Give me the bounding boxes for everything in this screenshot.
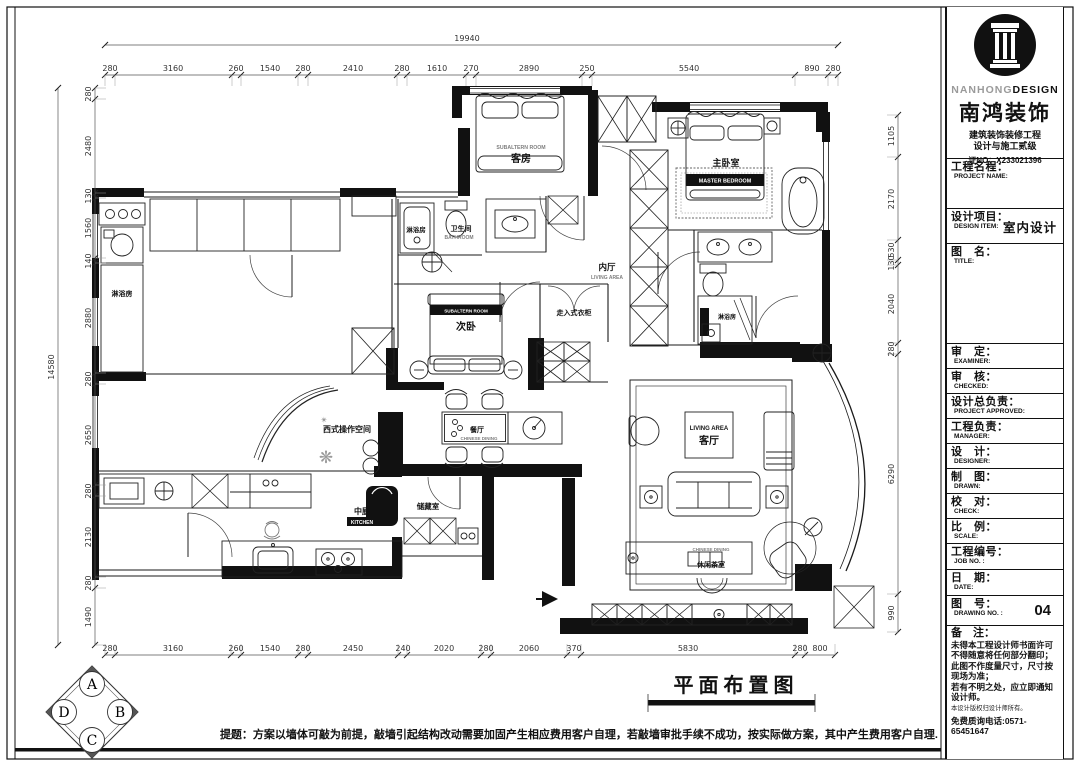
brand-cn: 南鸿装饰 [951,97,1059,127]
dim-label: 280 [295,64,310,73]
dim-label: 260 [228,64,243,73]
dim-label: 3160 [163,644,183,653]
dim-label: 280 [478,644,493,653]
dim-label: 2130 [84,527,93,547]
dim-label: 270 [463,64,478,73]
dim-label: 280 [295,644,310,653]
floorplan-canvas: SUBALTERN ROOM 客房 主卧室 MASTER BEDROOM 淋浴房… [0,0,1080,766]
dim-label: 530 [887,242,896,257]
master-room-label: 主卧室 [712,157,739,168]
field-remarks: 备 注： 未得本工程设计师书面许可不得随意将任何部分翻印； 此图不作度量尺寸，尺… [947,626,1063,757]
cert-lines: 建筑装饰装修工程 设计与施工贰级 [951,130,1059,152]
kitchen-label: 中厨 [354,506,370,516]
dim-label: 2480 [84,136,93,156]
field-designer: 设 计：DESIGNER: [947,444,1063,469]
partitions [99,192,865,576]
walkin-closet-label: 走入式衣柜 [557,308,592,317]
guest-room-label: 客房 [510,152,531,165]
side-table [640,486,662,508]
dim-label: 240 [395,644,410,653]
bathroom-label: 卫生间 [451,224,472,233]
compass-a: A [86,677,98,693]
dim-label: 2450 [343,644,363,653]
bathtub [782,168,824,234]
dim-label: 2060 [519,644,539,653]
dim-label: 280 [102,644,117,653]
company-logo-icon [973,13,1037,77]
dim-label: 2020 [434,644,454,653]
drawing-title-group: 平面布置图 [648,673,815,712]
dim-label: 130 [887,255,896,270]
hotline: 免费质询电话:0571-65451647 [951,716,1059,736]
master-shower-label: 淋浴房 [718,313,736,321]
master-room-label-en: MASTER BEDROOM [699,179,752,185]
bath-shower-label: 淋浴房 [406,225,426,234]
field-drawing-no: 图 号：DRAWING NO. : 04 [947,596,1063,626]
guest-room-label-en: SUBALTERN ROOM [496,145,545,151]
note-divider-bar [15,748,941,752]
dining-label: 餐厅 [469,425,484,434]
brand-en: NANHONGDESIGN [951,84,1059,96]
compass-c: C [87,733,98,749]
swivel-chair [764,522,816,574]
inner-hall-label: 内厅 [598,262,616,272]
dim-label: 2040 [887,294,896,314]
vanity [486,199,546,252]
living-label: 客厅 [698,434,719,447]
flower-deco-icon: ❋ [319,448,333,467]
dim-label: 1560 [84,218,93,238]
dim-label: 280 [887,341,896,356]
dim-label: 990 [887,605,896,620]
second-bedroom-label: 次卧 [456,320,476,333]
field-project-approved: 设计总负责：PROJECT APPROVED: [947,394,1063,419]
drawing-title: 平面布置图 [674,673,799,697]
dim-label: 1540 [260,644,280,653]
dim-label: 280 [84,86,93,101]
dim-label: 2410 [343,64,363,73]
room-labels: SUBALTERN ROOM 客房 主卧室 MASTER BEDROOM 淋浴房… [112,145,752,569]
field-title: 图 名：TITLE: [947,244,1063,344]
bottom-note: 提题：方案以墙体可敲为前提，敲墙引起结构改动需要加固产生相应费用客户自理，若敲墙… [180,726,938,744]
sideboard [508,412,562,444]
dining-label-en: CHINESE DINING [460,436,498,441]
dim-label: 890 [804,64,819,73]
tea-room-label: 休闲茶室 [696,560,725,569]
dim-label: 1105 [887,126,896,146]
dim-label: 130 [84,188,93,203]
dim-label: 2170 [887,189,896,209]
field-check: 校 对：CHECK: [947,494,1063,519]
drawing-sheet: SUBALTERN ROOM 客房 主卧室 MASTER BEDROOM 淋浴房… [0,0,1080,766]
compass-d: D [58,705,69,721]
field-project-name: 工程名程：PROJECT NAME: [947,159,1063,209]
storage-room [458,528,478,544]
sun-deco-icon: ✴ [320,415,328,425]
dim-label: 2880 [84,308,93,328]
bathroom-label-en: BATHROOM [444,235,473,241]
tea-room-label-en: CHINESE DINING [692,547,730,552]
field-examiner: 审 定：EXAMINER: [947,344,1063,369]
field-scale: 比 例：SCALE: [947,519,1063,544]
field-job-no: 工程编号：JOB NO. : [947,544,1063,570]
living-label-en: LIVING AREA [690,426,729,432]
dim-label: 3160 [163,64,183,73]
dim-label: 280 [84,483,93,498]
left-shower-strip [99,203,145,372]
side-table [766,486,788,508]
sofa [668,472,760,516]
dim-label: 800 [812,644,827,653]
dim-label: 1610 [427,64,447,73]
dim-label: 6290 [887,464,896,484]
dim-label: 280 [102,64,117,73]
field-design-item: 设计项目：DESIGN ITEM: 室内设计 [947,209,1063,244]
compass-b: B [115,705,125,721]
dim-label: 2890 [519,64,539,73]
dim-label: 5540 [679,64,699,73]
overall-width-dim: 19940 [454,34,479,43]
dim-label: 260 [228,644,243,653]
dim-label: 250 [579,64,594,73]
entrance-arrow-icon [536,591,558,607]
dim-label: 280 [84,371,93,386]
second-bed [410,294,522,379]
title-block: NANHONGDESIGN 南鸿装饰 建筑装饰装修工程 设计与施工贰级 证NO：… [947,7,1064,759]
storage-label: 储藏室 [417,501,440,511]
left-shower-label: 淋浴房 [112,289,133,298]
drawing-no-value: 04 [1034,602,1051,619]
company-logo-block: NANHONGDESIGN 南鸿装饰 建筑装饰装修工程 设计与施工贰级 证NO：… [947,7,1063,159]
dim-label: 370 [566,644,581,653]
ac-unit [668,118,688,138]
second-bedroom-label-en: SUBALTERN ROOM [444,309,488,314]
dim-label: 280 [792,644,807,653]
tea-table [626,542,752,574]
dim-label: 1490 [84,607,93,627]
kitchen-label-en: KITCHEN [351,520,374,526]
compass: A B C D [46,666,138,758]
dim-label: 5830 [678,644,698,653]
master-vanity [698,232,772,262]
field-checked: 审 核：CHECKED: [947,369,1063,394]
nightstand [764,118,780,134]
overall-height-dim: 14580 [47,354,56,379]
dim-label: 280 [825,64,840,73]
dim-label: 280 [394,64,409,73]
field-date: 日 期：DATE: [947,570,1063,596]
dim-label: 2650 [84,425,93,445]
wall-symbol [813,344,831,362]
master-toilet [700,264,726,296]
field-drawn: 制 图：DRAWN: [947,469,1063,494]
dim-label: 280 [84,575,93,590]
inner-hall-label-en: LIVING AREA [591,275,623,281]
dim-label: 140 [84,253,93,268]
field-manager: 工程负责：MANAGER: [947,419,1063,444]
western-kitchen-label: 西式操作空间 [323,424,371,434]
exhaust-fan [422,252,442,272]
design-item-value: 室内设计 [1003,217,1057,236]
dim-label: 1540 [260,64,280,73]
